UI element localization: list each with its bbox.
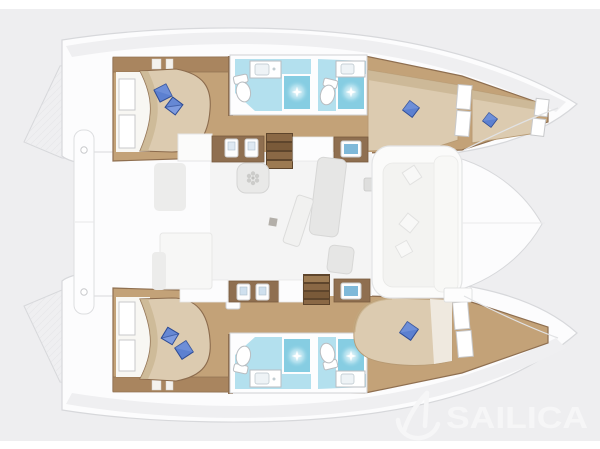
bottom-white-strip <box>0 441 600 449</box>
saloon-seat <box>327 245 355 275</box>
saloon-table-round <box>237 163 269 193</box>
sink-icon <box>336 61 365 77</box>
hull-window <box>119 302 135 335</box>
sink-icon <box>250 370 281 387</box>
lounge-backrest <box>434 156 458 292</box>
nav-station-top-right <box>334 137 368 162</box>
partition <box>178 134 212 161</box>
brand-text: SAILICA <box>446 400 588 435</box>
nav-station-bottom-right <box>334 279 370 302</box>
hull-window <box>119 115 135 148</box>
cockpit-table <box>160 233 212 289</box>
hull-window <box>119 79 135 110</box>
cockpit-seat <box>152 252 166 290</box>
hull-window <box>119 340 135 371</box>
sink-icon <box>250 61 281 78</box>
bathrooms-top <box>230 55 367 115</box>
catamaran-deck-plan: SAILICA <box>0 0 600 449</box>
stairs-top <box>266 133 293 169</box>
companionway <box>279 280 303 302</box>
bathroom-divider <box>311 335 318 391</box>
bow-table <box>444 288 472 302</box>
stern-crossbeam <box>74 130 94 314</box>
bathroom-divider <box>311 57 318 113</box>
yacht-layout-image: SAILICA <box>0 0 600 449</box>
top-white-strip <box>0 0 600 9</box>
stairs-bottom <box>303 274 330 305</box>
sink-icon <box>336 371 365 387</box>
mast-post <box>268 217 277 226</box>
galley-counter-bottom-left <box>229 281 279 302</box>
galley-counter-top-left <box>212 136 264 162</box>
bathrooms-bottom <box>230 333 367 393</box>
cockpit-bench <box>154 163 186 211</box>
forward-cockpit <box>372 146 472 302</box>
